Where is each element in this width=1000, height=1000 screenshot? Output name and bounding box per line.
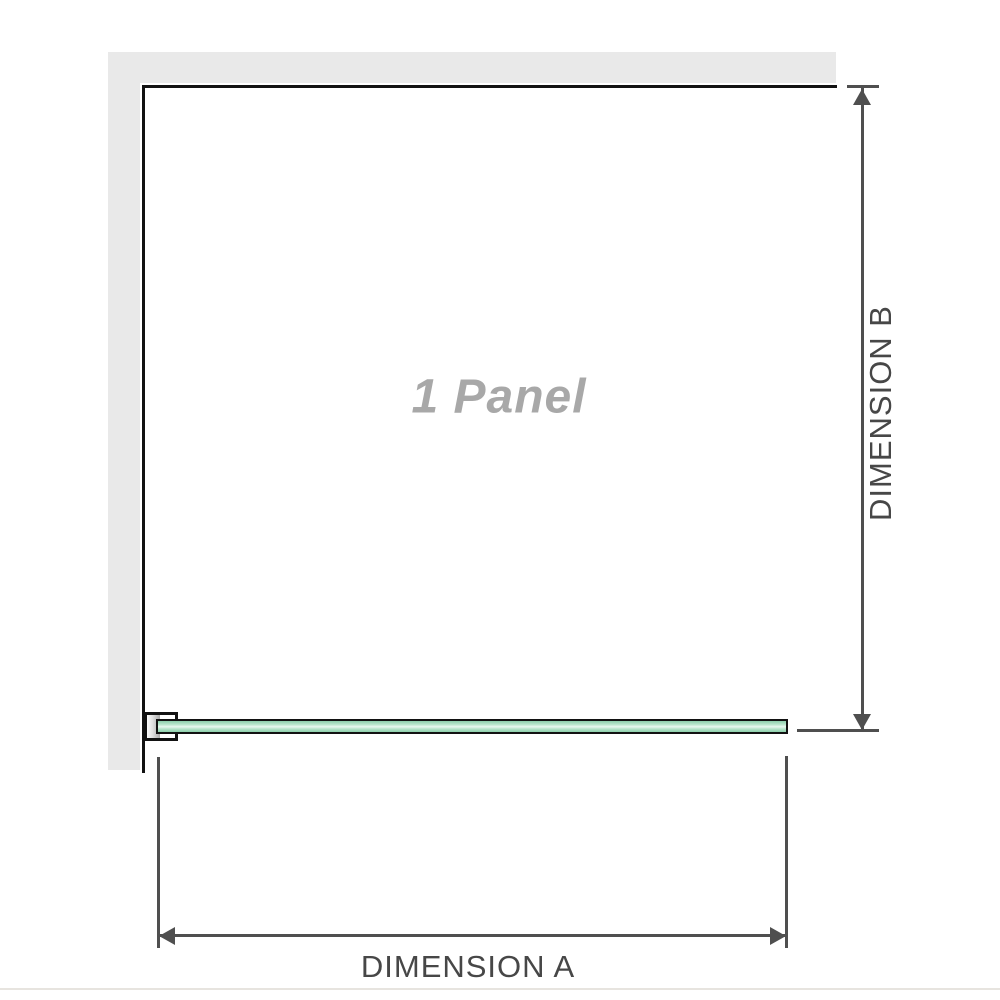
dimension-a-line bbox=[159, 934, 786, 937]
wall-inner-edge-vertical bbox=[142, 85, 145, 773]
dimension-a-extension-right bbox=[785, 756, 788, 948]
wall-left bbox=[108, 52, 140, 770]
dimension-b-label: DIMENSION B bbox=[863, 305, 899, 521]
dimension-a-extension-left bbox=[157, 757, 160, 948]
wall-top bbox=[108, 52, 836, 83]
footer-divider bbox=[0, 988, 1000, 990]
arrow-right-icon bbox=[770, 927, 786, 945]
arrow-left-icon bbox=[159, 927, 175, 945]
glass-panel-bar bbox=[156, 719, 788, 734]
shower-panel-dimension-diagram: 1 Panel DIMENSION B DIMENSION A bbox=[0, 0, 1000, 1000]
panel-area-label: 1 Panel bbox=[411, 370, 586, 425]
wall-inner-edge-horizontal bbox=[142, 85, 837, 88]
arrow-up-icon bbox=[853, 89, 871, 105]
arrow-down-icon bbox=[853, 714, 871, 730]
dimension-a-label: DIMENSION A bbox=[361, 949, 575, 985]
